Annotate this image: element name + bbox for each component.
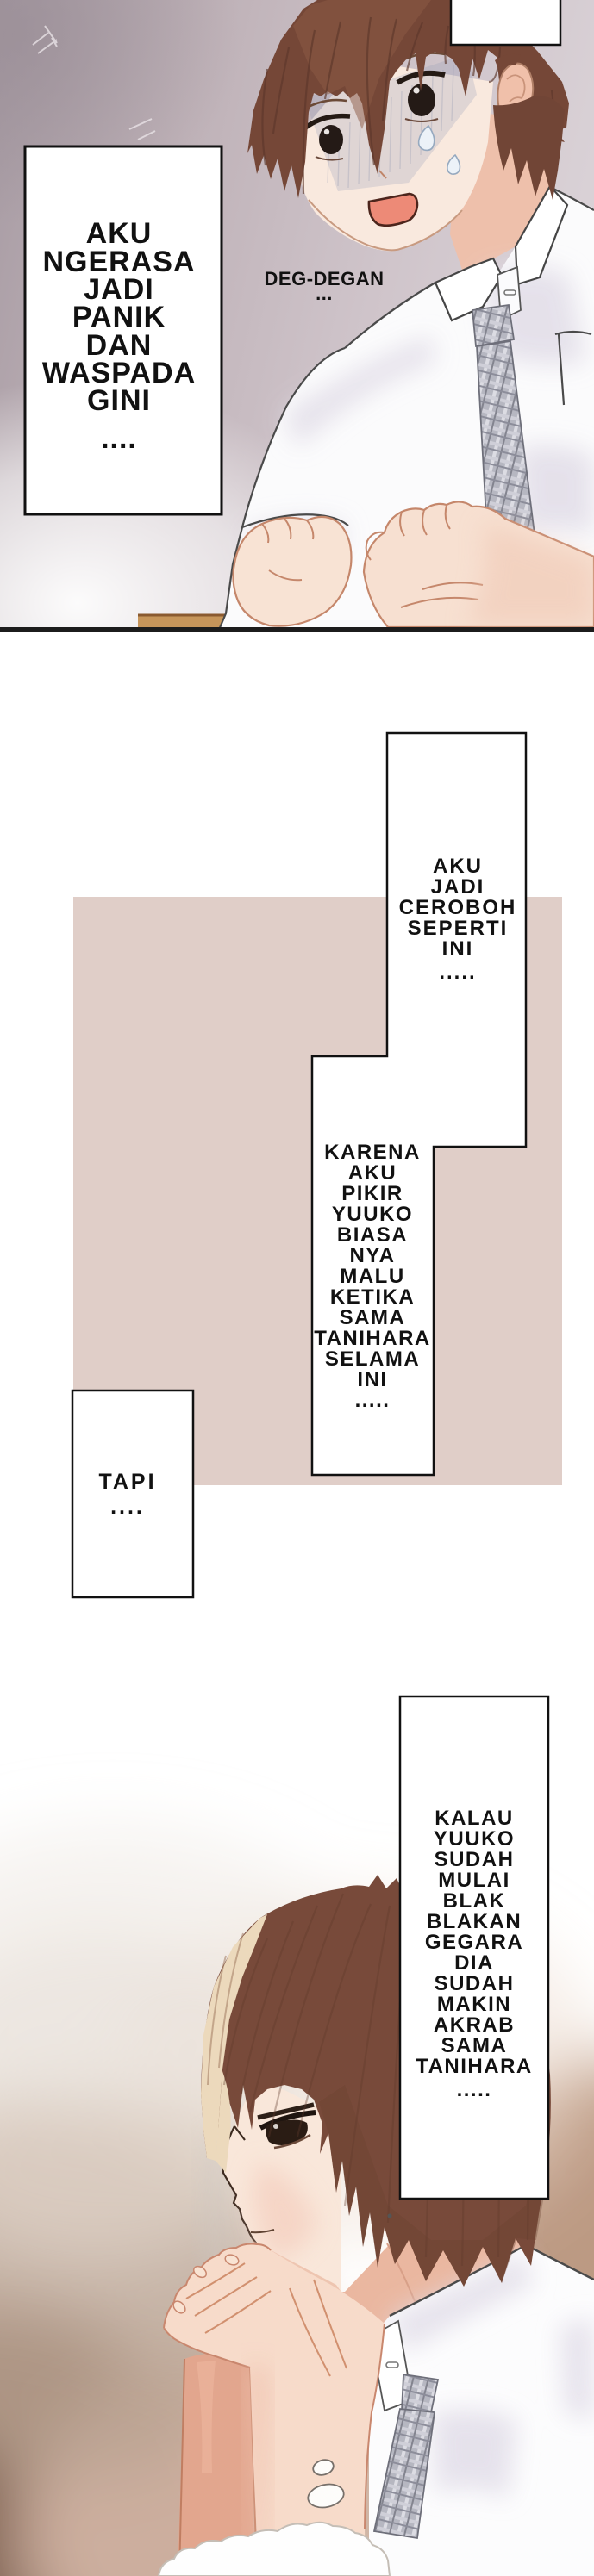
svg-text:TANIHARA: TANIHARA bbox=[416, 2055, 533, 2078]
svg-text:KETIKA: KETIKA bbox=[330, 1285, 415, 1309]
svg-text:INI: INI bbox=[357, 1368, 387, 1391]
svg-text:JADI: JADI bbox=[431, 875, 485, 899]
svg-text:DIA: DIA bbox=[454, 1951, 494, 1975]
svg-text:MALU: MALU bbox=[340, 1265, 404, 1288]
svg-text:BIASA: BIASA bbox=[337, 1223, 408, 1247]
svg-text:NYA: NYA bbox=[350, 1244, 396, 1267]
svg-text:KALAU: KALAU bbox=[435, 1807, 514, 1830]
svg-text:SELAMA: SELAMA bbox=[325, 1347, 420, 1371]
svg-text:SUDAH: SUDAH bbox=[435, 1972, 515, 1995]
svg-text:....: .... bbox=[110, 1495, 145, 1519]
svg-text:AKU: AKU bbox=[348, 1161, 397, 1185]
svg-text:PIKIR: PIKIR bbox=[341, 1182, 403, 1205]
svg-text:INI: INI bbox=[442, 937, 474, 961]
svg-text:GEGARA: GEGARA bbox=[425, 1931, 523, 1954]
svg-text:AKRAB: AKRAB bbox=[434, 2013, 515, 2037]
svg-text:.....: ..... bbox=[355, 1389, 391, 1412]
svg-text:GINI: GINI bbox=[87, 384, 151, 417]
svg-text:BLAKAN: BLAKAN bbox=[427, 1910, 522, 1933]
svg-text:AKU: AKU bbox=[433, 855, 483, 878]
svg-text:MAKIN: MAKIN bbox=[437, 1993, 511, 2016]
svg-text:.....: ..... bbox=[439, 961, 476, 984]
svg-text:....: .... bbox=[101, 422, 137, 455]
svg-text:TANIHARA: TANIHARA bbox=[314, 1327, 431, 1350]
svg-text:TAPI: TAPI bbox=[98, 1470, 156, 1494]
svg-text:MULAI: MULAI bbox=[438, 1869, 510, 1892]
svg-text:SAMA: SAMA bbox=[340, 1306, 406, 1329]
svg-text:BLAK: BLAK bbox=[443, 1889, 506, 1913]
svg-text:SAMA: SAMA bbox=[441, 2034, 508, 2057]
svg-text:YUUKO: YUUKO bbox=[332, 1203, 413, 1226]
svg-text:KARENA: KARENA bbox=[324, 1141, 421, 1164]
svg-text:SUDAH: SUDAH bbox=[435, 1848, 515, 1871]
svg-text:CEROBOH: CEROBOH bbox=[399, 896, 517, 919]
svg-text:.....: ..... bbox=[457, 2078, 492, 2101]
svg-text:YUUKO: YUUKO bbox=[434, 1827, 515, 1851]
svg-text:SEPERTI: SEPERTI bbox=[408, 917, 509, 940]
svg-text:...: ... bbox=[316, 283, 333, 304]
